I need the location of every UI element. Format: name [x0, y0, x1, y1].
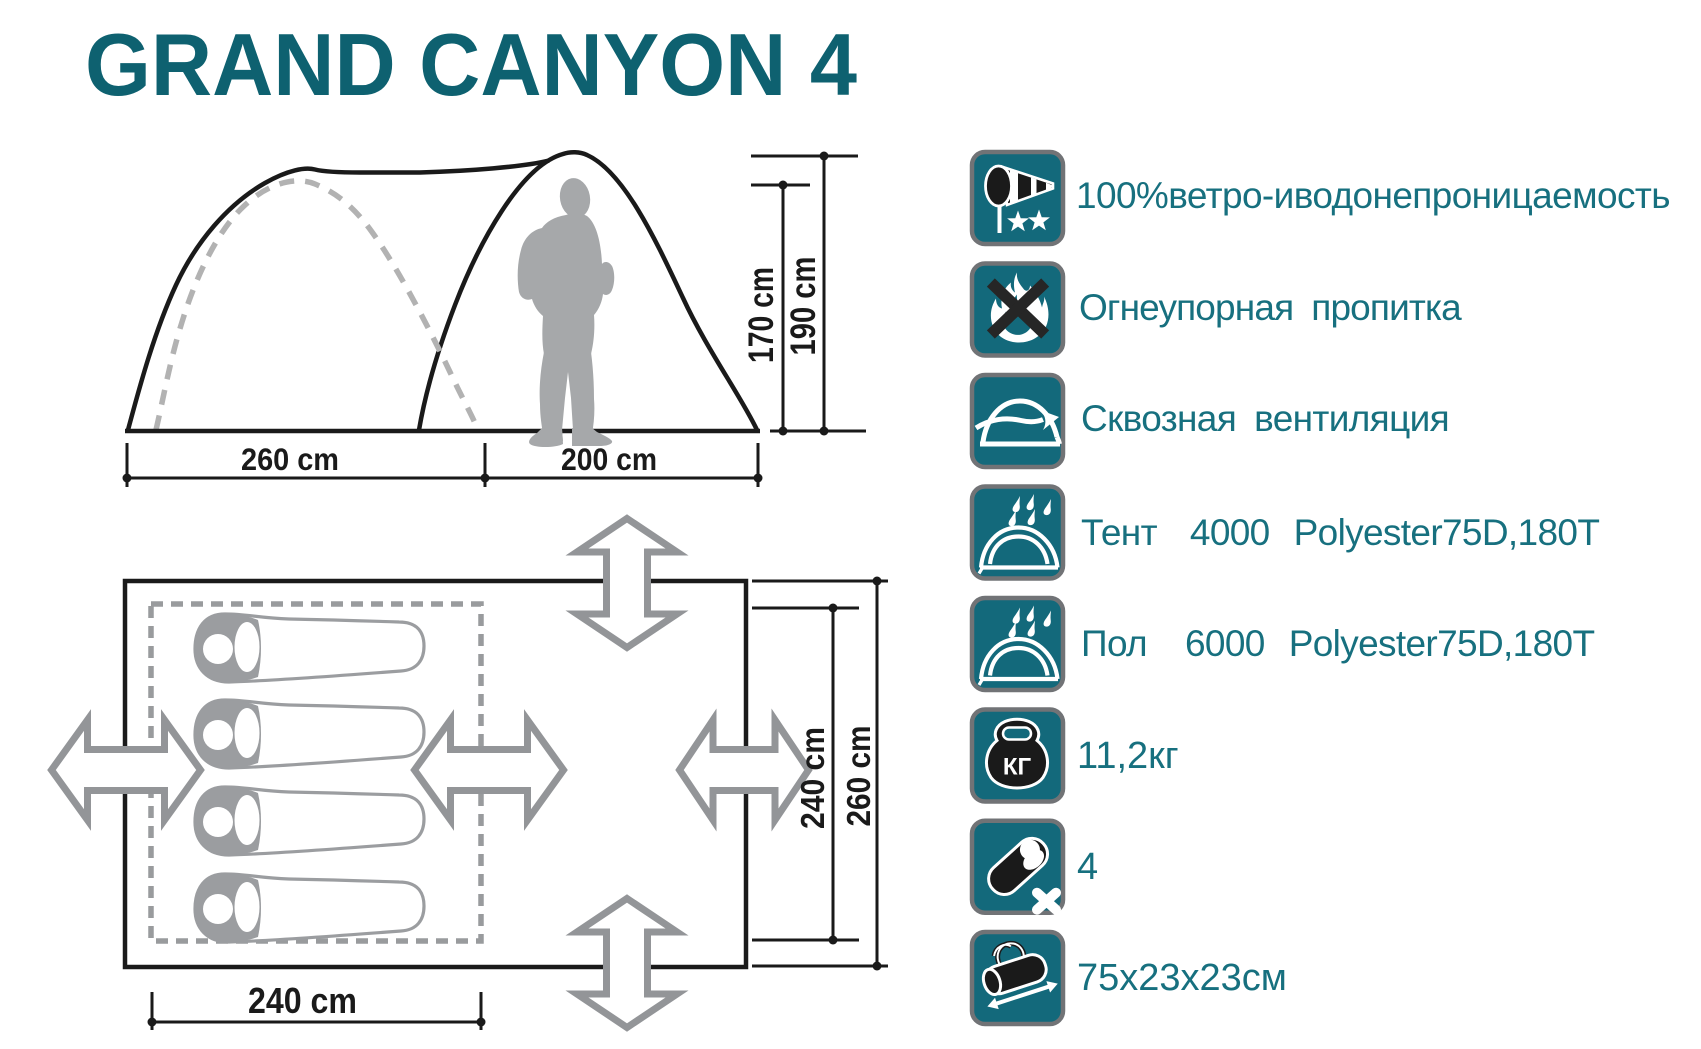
svg-text:240 cm: 240 cm [794, 727, 831, 829]
svg-text:75x23x23см: 75x23x23см [1077, 957, 1287, 999]
svg-text:Огнеупорнаяпропитка: Огнеупорнаяпропитка [1079, 287, 1462, 328]
svg-text:Пол6000Polyester75D,180T: Пол6000Polyester75D,180T [1081, 623, 1594, 664]
svg-text:Сквознаявентиляция: Сквознаявентиляция [1081, 398, 1449, 439]
svg-text:190 cm: 190 cm [784, 257, 823, 356]
svg-text:260 cm: 260 cm [840, 726, 877, 827]
svg-text:260 cm: 260 cm [241, 441, 339, 477]
svg-text:Тент4000Polyester75D,180T: Тент4000Polyester75D,180T [1081, 512, 1599, 553]
svg-text:11,2кг: 11,2кг [1077, 735, 1179, 777]
svg-text:100%ветро-иводонепроницаемость: 100%ветро-иводонепроницаемость [1076, 175, 1670, 216]
svg-text:170 cm: 170 cm [742, 267, 781, 363]
svg-text:200 cm: 200 cm [561, 441, 657, 477]
svg-text:240 cm: 240 cm [248, 980, 357, 1021]
svg-text:4: 4 [1077, 846, 1098, 888]
svg-text:КГ: КГ [1003, 754, 1032, 781]
svg-text:GRAND CANYON 4: GRAND CANYON 4 [85, 15, 857, 114]
